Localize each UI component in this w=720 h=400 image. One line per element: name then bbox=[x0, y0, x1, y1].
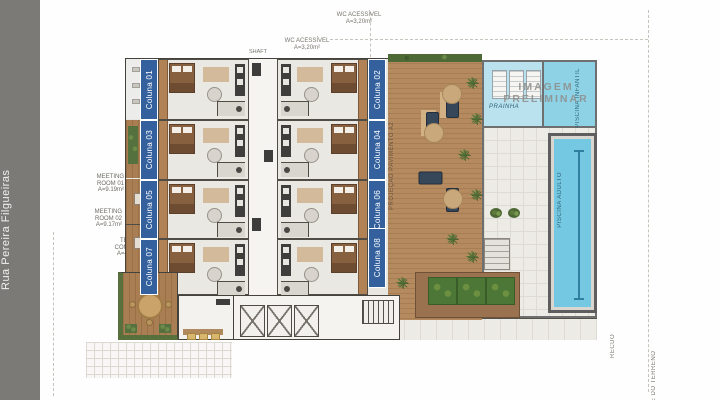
hedge bbox=[388, 54, 482, 62]
bathroom bbox=[281, 222, 309, 237]
column-label-text: Coluna 06 bbox=[373, 190, 382, 229]
rug bbox=[203, 188, 229, 203]
wc1-area: A=3,20m² bbox=[328, 19, 390, 26]
bed bbox=[331, 63, 357, 93]
kitchen-counter bbox=[235, 125, 245, 157]
dining-table bbox=[207, 208, 222, 223]
elevator bbox=[294, 305, 319, 337]
dining-table bbox=[304, 87, 319, 102]
column-label-03: Coluna 03 bbox=[140, 120, 158, 180]
rug bbox=[297, 188, 323, 203]
bed bbox=[169, 243, 195, 273]
bathroom bbox=[217, 222, 245, 237]
bathroom bbox=[281, 281, 309, 296]
rug bbox=[297, 247, 323, 262]
stool bbox=[187, 333, 196, 340]
wc1-title: WC ACESSÍVEL bbox=[328, 12, 390, 19]
lap-lane-line bbox=[578, 150, 580, 300]
bush bbox=[428, 277, 457, 305]
staircase bbox=[362, 300, 394, 324]
bed bbox=[169, 63, 195, 93]
boundary-line-left bbox=[53, 232, 54, 396]
apartment-unit-06 bbox=[277, 180, 368, 239]
apartment-unit-05 bbox=[158, 180, 249, 239]
meeting-room-1-label: MEETING ROOM 01 A=9.19m² bbox=[62, 174, 124, 194]
bed bbox=[169, 184, 195, 214]
column-label-text: Coluna 04 bbox=[373, 130, 382, 169]
column-label-08: Coluna 08 bbox=[368, 228, 386, 288]
palm-tree-icon: ✳ bbox=[470, 188, 483, 203]
dining-table bbox=[304, 148, 319, 163]
sidewalk-hatch bbox=[86, 342, 232, 378]
dining-table bbox=[304, 208, 319, 223]
dining-table bbox=[207, 87, 222, 102]
plant bbox=[508, 208, 520, 218]
plant bbox=[125, 324, 137, 333]
elevator bbox=[267, 305, 292, 337]
m1-l1: MEETING bbox=[62, 174, 124, 181]
shaft-box bbox=[264, 150, 273, 162]
bathroom bbox=[217, 101, 245, 116]
parasol-icon bbox=[424, 123, 444, 143]
boundary-line-top bbox=[330, 39, 648, 40]
bathroom bbox=[281, 162, 309, 177]
plant bbox=[159, 324, 171, 333]
kitchen-counter bbox=[281, 185, 291, 217]
wc2-title: WC ACESSÍVEL bbox=[276, 38, 338, 45]
apartment-unit-08 bbox=[277, 239, 368, 295]
street-bar: Rua Pereira Filgueiras bbox=[0, 0, 40, 400]
m2-l1: MEETING bbox=[60, 209, 122, 216]
rug bbox=[297, 128, 323, 143]
shaft-box bbox=[252, 218, 261, 231]
setback-label: RECUO bbox=[610, 328, 620, 358]
chair bbox=[146, 319, 153, 326]
apartment-unit-01 bbox=[158, 59, 249, 120]
balcony bbox=[159, 181, 168, 238]
dining-table bbox=[207, 267, 222, 282]
plant bbox=[490, 208, 502, 218]
balcony bbox=[358, 240, 367, 294]
palm-tree-icon: ✳ bbox=[458, 148, 471, 163]
m2-l3: A=9.17m² bbox=[60, 222, 122, 229]
column-label-text: Coluna 01 bbox=[145, 70, 154, 109]
m2-l2: ROOM 02 bbox=[60, 216, 122, 223]
kitchen-counter bbox=[281, 125, 291, 157]
m1-l3: A=9.19m² bbox=[62, 187, 124, 194]
central-corridor bbox=[249, 59, 277, 295]
stool bbox=[199, 333, 208, 340]
column-label-01: Coluna 01 bbox=[140, 59, 158, 120]
palm-tree-icon: ✳ bbox=[466, 76, 479, 91]
wc-accessible-label-1: WC ACESSÍVEL A=3,20m² bbox=[328, 12, 390, 26]
column-label-04: Coluna 04 bbox=[368, 120, 386, 180]
balcony bbox=[159, 60, 168, 119]
bed bbox=[169, 124, 195, 154]
paved-walkway bbox=[388, 318, 597, 340]
shaft-box bbox=[252, 63, 261, 76]
column-label-text: Coluna 07 bbox=[145, 247, 154, 286]
party-room bbox=[178, 295, 234, 340]
palm-tree-icon: ✳ bbox=[470, 112, 483, 127]
bed bbox=[331, 184, 357, 214]
parasol-icon bbox=[443, 189, 463, 209]
rug bbox=[203, 67, 229, 82]
ac-unit bbox=[132, 99, 140, 104]
palm-tree-icon: ✳ bbox=[466, 250, 479, 265]
bathroom bbox=[217, 281, 245, 296]
palm-tree-icon: ✳ bbox=[396, 276, 409, 291]
chair bbox=[129, 301, 136, 308]
bush bbox=[486, 277, 515, 305]
lot-limit-label: LIMITE DO TERRENO bbox=[651, 348, 661, 400]
kitchen-counter bbox=[235, 244, 245, 276]
adult-pool-label: PISCINA ADULTO bbox=[557, 172, 563, 228]
watermark-line1: IMAGEM bbox=[498, 82, 594, 94]
apartment-unit-03 bbox=[158, 120, 249, 180]
column-label-05: Coluna 05 bbox=[140, 180, 158, 239]
rug bbox=[203, 247, 229, 262]
street-name: Rua Pereira Filgueiras bbox=[0, 150, 40, 310]
watermark-line2: PRELIMINAR bbox=[498, 94, 594, 106]
planter bbox=[128, 126, 138, 164]
wc2-area: A=3,20m² bbox=[276, 45, 338, 52]
bathroom bbox=[217, 162, 245, 177]
bathroom bbox=[281, 101, 309, 116]
balcony bbox=[159, 121, 168, 179]
kitchen-counter bbox=[281, 64, 291, 96]
bush bbox=[457, 277, 486, 305]
deck-projection-label: PROJEÇÃO PAVIMENTO A2 bbox=[389, 124, 399, 210]
apartment-unit-02 bbox=[277, 59, 368, 120]
sun-lounger bbox=[419, 172, 443, 185]
kitchen-counter bbox=[281, 244, 291, 276]
column-label-text: Coluna 05 bbox=[145, 190, 154, 229]
ac-unit bbox=[132, 83, 140, 88]
ac-unit bbox=[132, 67, 140, 72]
column-label-text: Coluna 02 bbox=[373, 70, 382, 109]
bed bbox=[331, 124, 357, 154]
dining-table bbox=[207, 148, 222, 163]
m1-l2: ROOM 01 bbox=[62, 181, 124, 188]
apartment-unit-04 bbox=[277, 120, 368, 180]
floorplan-canvas: Rua Pereira Filgueiras WC ACESSÍVEL A=3,… bbox=[0, 0, 720, 400]
kitchen-counter bbox=[235, 64, 245, 96]
preliminary-watermark: IMAGEM PRELIMINAR bbox=[498, 82, 594, 105]
wc-accessible-label-2: WC ACESSÍVEL A=3,20m² bbox=[276, 38, 338, 52]
rug bbox=[203, 128, 229, 143]
column-label-text: Coluna 03 bbox=[145, 130, 154, 169]
balcony bbox=[358, 60, 367, 119]
elevator bbox=[240, 305, 265, 337]
kitchen-counter bbox=[235, 185, 245, 217]
chair bbox=[165, 301, 172, 308]
column-label-07: Coluna 07 bbox=[140, 239, 158, 295]
parasol-icon bbox=[442, 84, 462, 104]
rug bbox=[297, 67, 323, 82]
pool-steps bbox=[484, 238, 510, 270]
round-table bbox=[137, 293, 163, 319]
palm-tree-icon: ✳ bbox=[446, 232, 459, 247]
planter-box bbox=[415, 272, 520, 318]
meeting-room-2-label: MEETING ROOM 02 A=9.17m² bbox=[60, 209, 122, 229]
balcony bbox=[358, 181, 367, 238]
bed bbox=[331, 243, 357, 273]
kitchen-counter bbox=[216, 299, 230, 305]
boundary-line-right bbox=[648, 10, 649, 392]
stool bbox=[211, 333, 220, 340]
column-label-text: Coluna 08 bbox=[373, 238, 382, 277]
shaft-label: SHAFT bbox=[242, 49, 274, 55]
column-label-02: Coluna 02 bbox=[368, 59, 386, 120]
balcony bbox=[358, 121, 367, 179]
adult-pool: PISCINA ADULTO bbox=[548, 133, 597, 313]
dining-table bbox=[304, 267, 319, 282]
